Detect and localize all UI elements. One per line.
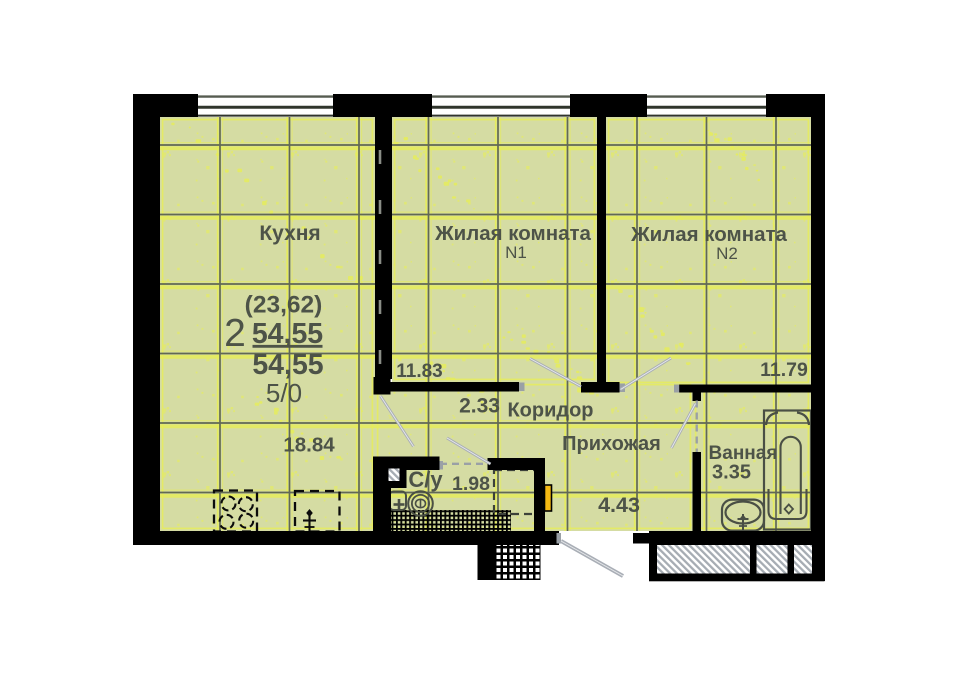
svg-text:N1: N1 (505, 243, 527, 262)
svg-text:(23,62): (23,62) (245, 292, 323, 319)
svg-text:2: 2 (224, 312, 246, 355)
svg-text:Жилая комната: Жилая комната (434, 222, 591, 245)
svg-text:18.84: 18.84 (283, 434, 335, 457)
svg-text:54,55: 54,55 (252, 349, 323, 381)
svg-text:11.83: 11.83 (396, 361, 443, 382)
svg-text:Жилая комната: Жилая комната (630, 223, 787, 246)
svg-text:Прихожая: Прихожая (562, 433, 661, 455)
svg-text:Кухня: Кухня (259, 222, 320, 245)
svg-text:11.79: 11.79 (760, 359, 808, 381)
svg-text:1.98: 1.98 (452, 473, 490, 495)
svg-text:2.33: 2.33 (459, 395, 500, 418)
svg-text:4.43: 4.43 (598, 493, 640, 517)
svg-text:5/0: 5/0 (266, 378, 302, 408)
svg-text:3.35: 3.35 (712, 462, 751, 484)
svg-text:N2: N2 (716, 244, 738, 263)
svg-text:С/у: С/у (408, 467, 443, 492)
svg-text:Коридор: Коридор (507, 400, 593, 422)
